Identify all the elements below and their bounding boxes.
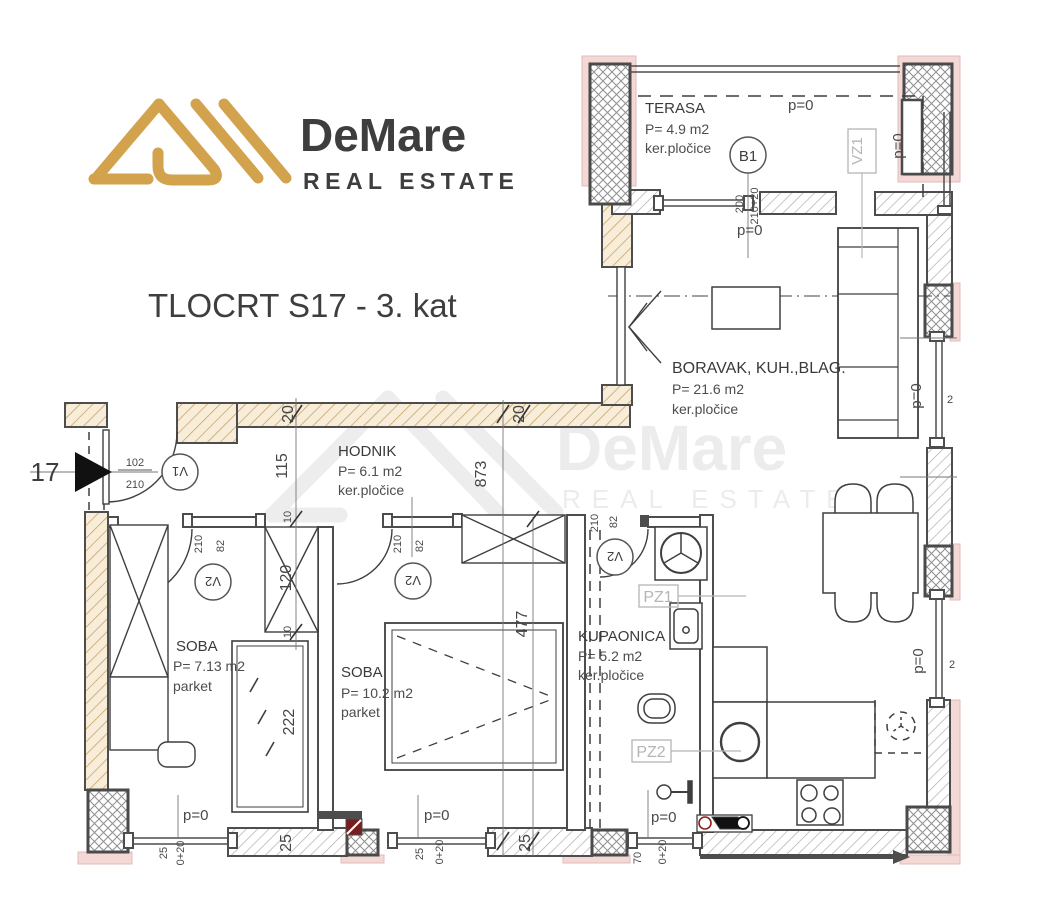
kitchen: [713, 647, 927, 825]
room-label-boravak: BORAVAK, KUH.,BLAG. P= 21.6 m2 ker.ploči…: [672, 360, 846, 417]
room-name: SOBA: [176, 638, 218, 655]
bath-sink-icon: [670, 603, 702, 649]
logo-tagline: REAL ESTATE: [303, 168, 519, 194]
entrance-number: 17: [31, 457, 60, 487]
living-door-arrows: [629, 291, 661, 363]
toilet-icon: [638, 694, 675, 723]
dim: 25: [517, 834, 534, 852]
logo-mountains-icon: [94, 104, 286, 180]
room-name: KUPAONICA: [578, 628, 665, 645]
dim: 25: [414, 848, 426, 860]
dim: 82: [215, 540, 227, 552]
room-label-hodnik: HODNIK P= 6.1 m2 ker.pločice: [338, 443, 404, 498]
dim: 10: [282, 511, 294, 523]
dim: 210: [392, 535, 404, 553]
room-area: P= 5.2 m2: [578, 648, 642, 664]
marker-b1: B1: [739, 148, 757, 165]
level-label: p=0: [737, 222, 762, 239]
dim: 70: [632, 852, 644, 864]
radiator-icon: [697, 815, 752, 832]
level-label: p=0: [651, 809, 676, 826]
entrance-door-leaf: [103, 430, 109, 504]
wardrobe-hall-2: [462, 515, 565, 563]
dim: 210+20: [749, 187, 761, 224]
room-floor: ker.pločice: [645, 140, 711, 156]
room-name: TERASA: [645, 100, 705, 117]
dim: 210: [193, 535, 205, 553]
level-label: p=0: [910, 648, 927, 673]
room-floor: ker.pločice: [672, 401, 738, 417]
marker-vz1: VZ1: [849, 137, 866, 165]
living-door-leaf: [617, 267, 625, 385]
kitchen-counter: [767, 702, 875, 778]
room-name: SOBA: [341, 664, 383, 681]
room-floor: ker.pločice: [578, 667, 644, 683]
room-area: P= 4.9 m2: [645, 121, 709, 137]
logo: DeMare REAL ESTATE: [94, 104, 519, 194]
room-area: P= 6.1 m2: [338, 463, 402, 479]
chair-icon: [835, 484, 871, 514]
marker-v1: V1: [172, 464, 188, 479]
level-label: p=0: [788, 97, 813, 114]
chair-icon: [835, 592, 871, 622]
dim: 120: [278, 565, 295, 592]
door-dim-width: 102: [126, 457, 144, 469]
dining-table: [823, 513, 918, 593]
dim: 20: [511, 405, 528, 423]
logo-brand: DeMare: [300, 109, 466, 161]
room-floor: parket: [341, 704, 380, 720]
floorplan-page: DeMare REAL ESTATE DeMare REAL ESTATE TL…: [0, 0, 1051, 910]
level-label: p=0: [424, 807, 449, 824]
level-label: p=0: [908, 383, 925, 408]
dim: 2: [947, 394, 953, 406]
door-handle-icon: [657, 781, 692, 803]
room-area: P= 7.13 m2: [173, 658, 245, 674]
dim: 0+20: [434, 840, 446, 865]
page-title: TLOCRT S17 - 3. kat: [148, 287, 457, 324]
dim: 873: [473, 461, 490, 488]
dim: 2: [949, 659, 955, 671]
dim: 210: [589, 514, 601, 532]
fridge-icon: [875, 700, 927, 753]
room-floor: ker.pločice: [338, 482, 404, 498]
chair-icon: [877, 592, 913, 622]
washing-machine-icon: [655, 527, 707, 580]
marker-v2: V2: [405, 573, 421, 588]
dim: 477: [514, 611, 531, 638]
door-jamb-dark: [640, 515, 649, 527]
sill-marker: [317, 811, 362, 819]
dim: 10: [282, 626, 294, 638]
dim: 200: [734, 195, 746, 213]
dim: 20: [280, 405, 297, 423]
marker-v2: V2: [607, 549, 623, 564]
watermark-tagline: REAL ESTATE: [562, 484, 854, 514]
room-area: P= 21.6 m2: [672, 381, 744, 397]
room-label-terasa: TERASA P= 4.9 m2 ker.pločice: [645, 100, 711, 156]
room-label-kupaonica: KUPAONICA P= 5.2 m2 ker.pločice: [578, 628, 665, 683]
sofa: [838, 228, 918, 438]
level-label: p=0: [890, 133, 907, 158]
room-floor: parket: [173, 678, 212, 694]
dim: 0+20: [657, 840, 669, 865]
coffee-table: [712, 287, 780, 329]
room-area: P= 10.2 m2: [341, 685, 413, 701]
level-label: p=0: [183, 807, 208, 824]
dim: 222: [281, 709, 298, 736]
room-name: BORAVAK, KUH.,BLAG.: [672, 360, 846, 377]
door-dim-height: 210: [126, 479, 144, 491]
dim: 0+20: [175, 841, 187, 866]
chair-icon: [877, 484, 913, 514]
marker-v2: V2: [205, 574, 221, 589]
dim: 115: [274, 453, 291, 479]
dim: 82: [608, 516, 620, 528]
dim: 25: [158, 847, 170, 859]
room-name: HODNIK: [338, 443, 396, 460]
marker-pz2: PZ2: [636, 744, 665, 761]
floorplan-drawing: DeMare REAL ESTATE DeMare REAL ESTATE TL…: [0, 0, 1051, 910]
kitchen-cabinet: [713, 647, 767, 702]
dim: 25: [278, 834, 295, 852]
marker-pz1: PZ1: [643, 589, 672, 606]
dining-set: [823, 484, 918, 622]
stove-icon: [797, 780, 843, 825]
dim: 82: [414, 540, 426, 552]
